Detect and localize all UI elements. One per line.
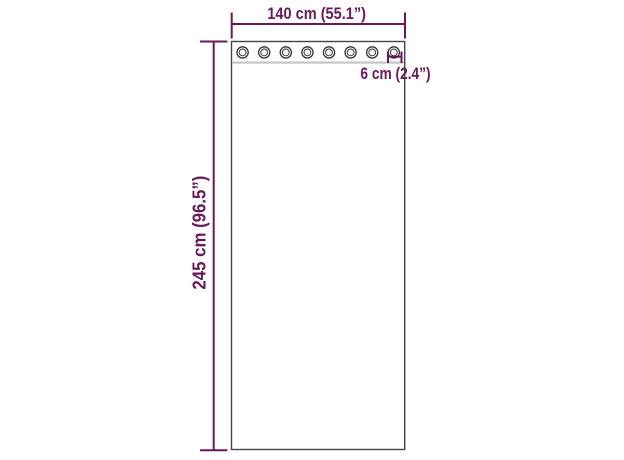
svg-text:140 cm (55.1”): 140 cm (55.1”)	[267, 4, 366, 23]
svg-text:6 cm (2.4”): 6 cm (2.4”)	[360, 64, 430, 83]
svg-text:245 cm (96.5”): 245 cm (96.5”)	[189, 176, 209, 290]
